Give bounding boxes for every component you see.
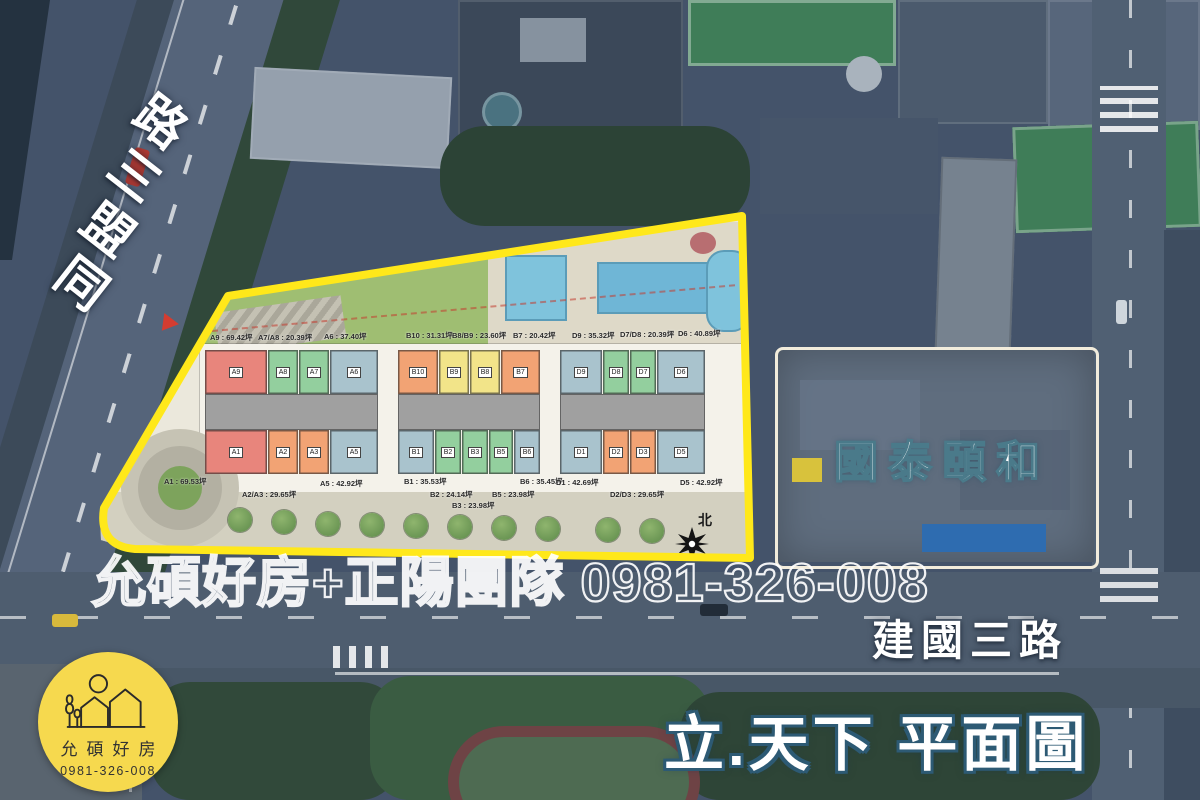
unit-B1: B1 bbox=[398, 430, 434, 474]
unit-tag: B6 bbox=[520, 447, 535, 458]
spa-pool bbox=[706, 250, 750, 332]
building bbox=[250, 67, 453, 169]
street-tree bbox=[228, 508, 252, 532]
unit-D2: D2 bbox=[603, 430, 629, 474]
canal-water bbox=[0, 0, 70, 260]
unit-area-label: B1 : 35.53坪 bbox=[404, 476, 447, 487]
unit-area-label: D7/D8 : 20.39坪 bbox=[620, 329, 674, 340]
unit-area-label: A7/A8 : 20.39坪 bbox=[258, 332, 312, 343]
unit-tag: B1 bbox=[409, 447, 424, 458]
street-tree bbox=[448, 515, 472, 539]
building bbox=[1164, 230, 1200, 800]
unit-A7: A7 bbox=[299, 350, 329, 394]
crosswalk bbox=[1100, 86, 1158, 132]
core-block-b bbox=[398, 394, 540, 430]
unit-B10: B10 bbox=[398, 350, 438, 394]
street-tree bbox=[404, 514, 428, 538]
unit-tag: B10 bbox=[409, 367, 427, 378]
logo-phone: 0981-326-008 bbox=[60, 764, 156, 778]
unit-A9: A9 bbox=[205, 350, 267, 394]
unit-tag: B2 bbox=[441, 447, 456, 458]
unit-tag: A9 bbox=[229, 367, 244, 378]
unit-tag: B7 bbox=[513, 367, 528, 378]
house-logo-icon bbox=[60, 671, 156, 733]
unit-A3: A3 bbox=[299, 430, 329, 474]
unit-tag: A5 bbox=[347, 447, 362, 458]
unit-area-label: D9 : 35.32坪 bbox=[572, 330, 615, 341]
building bbox=[898, 0, 1048, 124]
vehicle bbox=[1116, 300, 1127, 324]
unit-A6: A6 bbox=[330, 350, 378, 394]
core-block-d bbox=[560, 394, 705, 430]
unit-tag: A8 bbox=[276, 367, 291, 378]
vehicle bbox=[52, 614, 78, 627]
unit-A8: A8 bbox=[268, 350, 298, 394]
unit-D1: D1 bbox=[560, 430, 602, 474]
page-title: 立.天下 平面圖 bbox=[664, 696, 1089, 783]
building-roof bbox=[520, 18, 586, 62]
unit-D7: D7 bbox=[630, 350, 656, 394]
unit-area-label: A1 : 69.53坪 bbox=[164, 476, 207, 487]
round-tank bbox=[846, 56, 882, 92]
flowering-shrub bbox=[690, 232, 716, 254]
unit-area-label: B5 : 23.98坪 bbox=[492, 489, 535, 500]
street-tree bbox=[272, 510, 296, 534]
unit-area-label: B8/B9 : 23.60坪 bbox=[452, 330, 506, 341]
unit-tag: D3 bbox=[636, 447, 651, 458]
unit-tag: D5 bbox=[674, 447, 689, 458]
unit-tag: D6 bbox=[674, 367, 689, 378]
logo-name: 允碩好房 bbox=[52, 735, 165, 760]
unit-tag: A7 bbox=[307, 367, 322, 378]
unit-B8: B8 bbox=[470, 350, 500, 394]
circular-court-garden bbox=[158, 466, 202, 510]
unit-tag: A1 bbox=[229, 447, 244, 458]
adjacent-site-box: 國泰頤和 bbox=[775, 347, 1099, 569]
unit-tag: D7 bbox=[636, 367, 651, 378]
entry-arrow-icon bbox=[162, 313, 180, 333]
unit-area-label: D1 : 42.69坪 bbox=[556, 477, 599, 488]
unit-area-label: B7 : 20.42坪 bbox=[513, 330, 556, 341]
unit-B3: B3 bbox=[462, 430, 488, 474]
unit-tag: D9 bbox=[574, 367, 589, 378]
aerial-site-plan-image: A9A8A7A6A1A2A3A5B10B9B8B7B1B2B3B5B6D9D8D… bbox=[0, 0, 1200, 800]
unit-area-label: D2/D3 : 29.65坪 bbox=[610, 489, 664, 500]
unit-area-label: D5 : 42.92坪 bbox=[680, 477, 723, 488]
unit-B6: B6 bbox=[514, 430, 540, 474]
unit-D9: D9 bbox=[560, 350, 602, 394]
flowering-shrub bbox=[320, 228, 346, 250]
unit-D5: D5 bbox=[657, 430, 705, 474]
unit-B7: B7 bbox=[501, 350, 540, 394]
crosswalk bbox=[1100, 560, 1158, 602]
unit-area-label: A6 : 37.40坪 bbox=[324, 331, 367, 342]
building bbox=[760, 118, 938, 214]
kids-pool bbox=[505, 255, 567, 321]
unit-tag: D1 bbox=[574, 447, 589, 458]
unit-tag: B5 bbox=[494, 447, 509, 458]
unit-tag: B9 bbox=[447, 367, 462, 378]
unit-area-label: B10 : 31.31坪 bbox=[406, 330, 453, 341]
unit-B2: B2 bbox=[435, 430, 461, 474]
adjacent-site-label: 國泰頤和 bbox=[824, 426, 1050, 490]
unit-B5: B5 bbox=[489, 430, 513, 474]
unit-tag: B3 bbox=[468, 447, 483, 458]
unit-B9: B9 bbox=[439, 350, 469, 394]
tree-cluster bbox=[440, 126, 750, 226]
unit-D6: D6 bbox=[657, 350, 705, 394]
building bbox=[935, 157, 1018, 356]
unit-tag: A3 bbox=[307, 447, 322, 458]
unit-A5: A5 bbox=[330, 430, 378, 474]
unit-tag: A2 bbox=[276, 447, 291, 458]
unit-A1: A1 bbox=[205, 430, 267, 474]
unit-tag: A6 bbox=[347, 367, 362, 378]
unit-tag: D2 bbox=[609, 447, 624, 458]
unit-D3: D3 bbox=[630, 430, 656, 474]
street-tree bbox=[316, 512, 340, 536]
unit-area-label: A2/A3 : 29.65坪 bbox=[242, 489, 296, 500]
unit-area-label: B2 : 24.14坪 bbox=[430, 489, 473, 500]
street-tree bbox=[492, 516, 516, 540]
tree-cluster bbox=[150, 682, 400, 800]
agency-logo: 允碩好房 0981-326-008 bbox=[38, 652, 178, 792]
unit-area-label: A5 : 42.92坪 bbox=[320, 478, 363, 489]
unit-tag: D8 bbox=[609, 367, 624, 378]
road-label-jianguo-3rd: 建國三路 bbox=[872, 607, 1068, 668]
guardrail bbox=[335, 672, 1059, 675]
running-track bbox=[448, 726, 700, 800]
street-tree bbox=[360, 513, 384, 537]
unit-D8: D8 bbox=[603, 350, 629, 394]
watermark-text: 允碩好房+正陽團隊 0981-326-008 bbox=[92, 538, 929, 617]
unit-area-label: B3 : 23.98坪 bbox=[452, 500, 495, 511]
unit-tag: B8 bbox=[478, 367, 493, 378]
unit-A2: A2 bbox=[268, 430, 298, 474]
core-block-a bbox=[205, 394, 378, 430]
unit-area-label: D6 : 40.89坪 bbox=[678, 328, 721, 339]
unit-area-label: A9 : 69.42坪 bbox=[210, 332, 253, 343]
